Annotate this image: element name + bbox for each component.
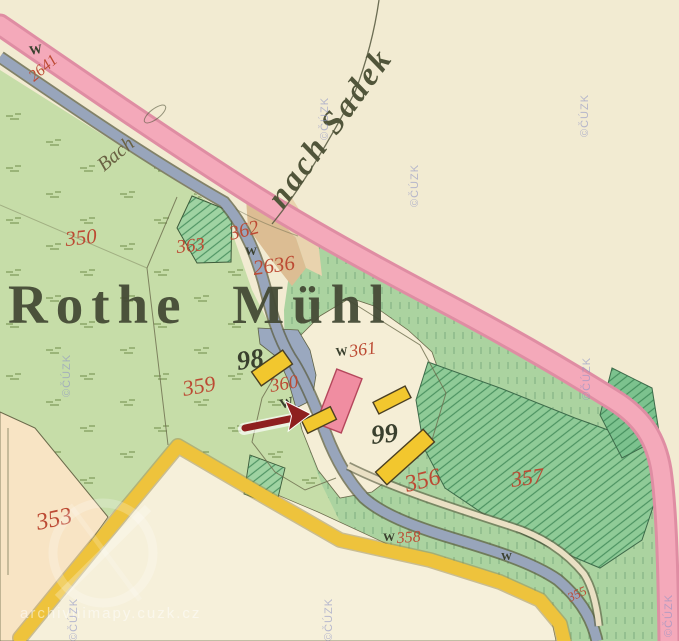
house-number-99: 99 — [369, 417, 399, 450]
copyright-watermark: ©ČÚZK — [662, 594, 675, 637]
parcel-number-363: 363 — [174, 234, 206, 258]
copyright-watermark: ©ČÚZK — [578, 94, 591, 137]
wiese-symbol: W — [28, 41, 43, 58]
wiese-symbol: W — [335, 344, 348, 359]
map-canvas[interactable]: Rothe Mühl nach Sadek Bach 350 362 363 2… — [0, 0, 679, 641]
copyright-watermark: ©ČÚZK — [322, 598, 335, 641]
wiese-symbol: W — [383, 530, 395, 544]
copyright-watermark: ©ČÚZK — [67, 598, 80, 641]
parcel-number-358: 358 — [395, 528, 421, 547]
parcel-number-350: 350 — [63, 224, 98, 251]
copyright-watermark: ©ČÚZK — [408, 164, 421, 207]
copyright-watermark: ©ČÚZK — [60, 354, 73, 397]
house-number-98: 98 — [235, 342, 266, 376]
parcel-number-361: 361 — [347, 337, 378, 361]
place-label: Rothe Mühl — [8, 274, 393, 335]
wiese-symbol: W — [501, 551, 512, 563]
copyright-watermark: ©ČÚZK — [318, 97, 331, 140]
cadastral-map: Rothe Mühl nach Sadek Bach 350 362 363 2… — [0, 0, 679, 641]
parcel-number-357: 357 — [508, 462, 546, 492]
site-watermark-text: archivnimapy.cuzk.cz — [20, 605, 201, 622]
wiese-symbol: W — [245, 244, 257, 258]
copyright-watermark: ©ČÚZK — [580, 357, 593, 400]
